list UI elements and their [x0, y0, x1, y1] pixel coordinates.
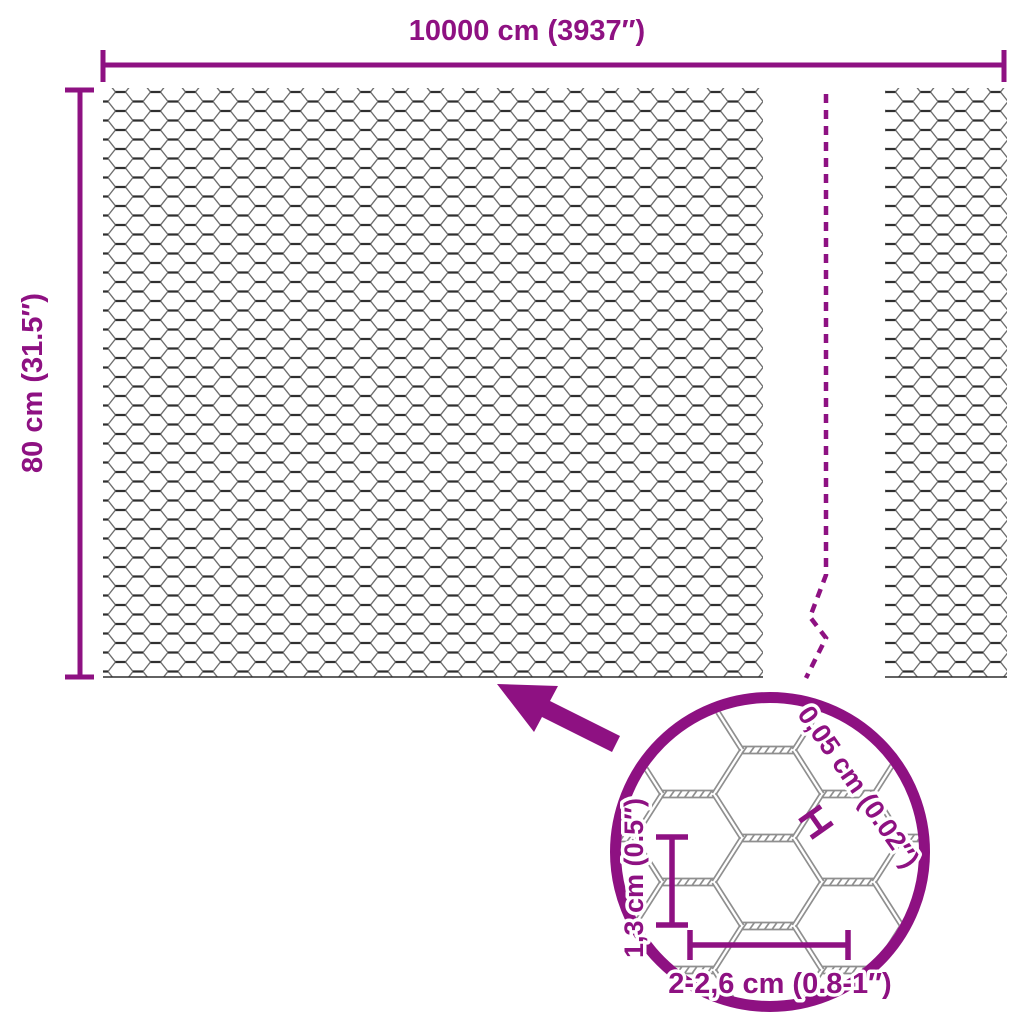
- cell-height-label: 1,3 cm (0.5″): [619, 798, 649, 958]
- mesh-panel-left: [103, 88, 763, 677]
- width-dimension: [103, 50, 1004, 82]
- height-dimension-label: 80 cm (31.5″): [17, 293, 49, 473]
- magnifier-circle: 0,05 cm (0.02″) 1,3 cm (0.5″) 2-2,6 cm (…: [616, 698, 926, 1007]
- diagram-canvas: 10000 cm (3937″) 80 cm (31.5″) 0,05 cm (…: [0, 0, 1024, 1024]
- break-line: [806, 94, 826, 678]
- product-dimension-diagram: 10000 cm (3937″) 80 cm (31.5″) 0,05 cm (…: [0, 0, 1024, 1024]
- height-dimension: [65, 90, 94, 677]
- cell-width-label: 2-2,6 cm (0.8-1″): [668, 968, 891, 1000]
- mesh-panel-right: [885, 88, 1007, 677]
- width-dimension-label: 10000 cm (3937″): [409, 15, 645, 47]
- zoom-arrow-icon: [497, 684, 620, 752]
